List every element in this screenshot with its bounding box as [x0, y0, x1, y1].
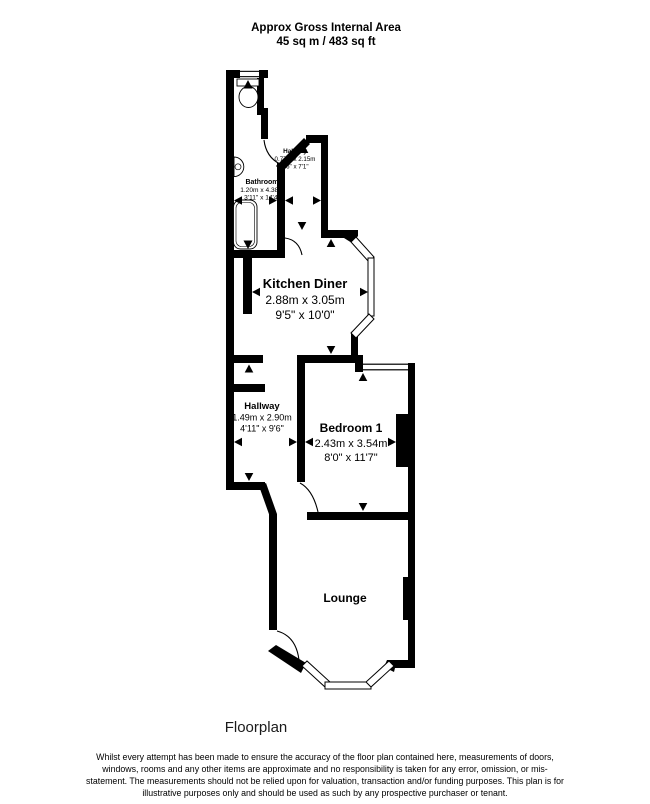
- room-hallway-label: Hallway 1.49m x 2.90m 4'11" x 9'6": [232, 401, 292, 434]
- room-dim-imperial: 4'11" x 9'6": [240, 424, 284, 434]
- wall-kitchen-chimney: [243, 250, 252, 314]
- wall-left-outer: [226, 70, 234, 490]
- room-name: Hallway: [244, 401, 280, 412]
- kitchen-door-arc: [285, 238, 302, 255]
- room-name: Hallway: [283, 148, 307, 155]
- lounge-bay-glazing-mid: [325, 682, 371, 689]
- wall-entry-right: [321, 135, 328, 238]
- room-dim-metric: 2.43m x 3.54m: [315, 438, 388, 450]
- wall-bedroom-top-junction: [355, 355, 363, 372]
- sink-icon: [234, 157, 244, 177]
- room-kitchen-diner-label: Kitchen Diner 2.88m x 3.05m 9'5" x 10'0": [263, 276, 348, 322]
- measure-arrow-left: [305, 438, 313, 446]
- wall-bathroom-bottom: [226, 250, 285, 258]
- floorplan-caption: Floorplan: [225, 719, 288, 736]
- floorplan-page: Approx Gross Internal Area 45 sq m / 483…: [0, 0, 650, 804]
- room-bedroom-1-label: Bedroom 1 2.43m x 3.54m 8'0" x 11'7": [315, 421, 388, 464]
- wall-bathroom-right: [277, 163, 285, 258]
- wall-lounge-left: [269, 514, 277, 630]
- room-entry-hallway-label: Hallway 0.77m x 2.15m 2'6" x 7'1": [275, 148, 316, 171]
- measure-arrow-down: [245, 473, 254, 481]
- room-dim-metric: 1.49m x 2.90m: [232, 413, 292, 423]
- room-dim-metric: 1.20m x 4.38m: [240, 187, 284, 194]
- measure-arrow-left: [234, 438, 242, 446]
- room-name: Bathroom: [245, 179, 278, 186]
- measure-arrow-right: [388, 438, 396, 446]
- wall-wc-right-lower: [261, 112, 268, 139]
- floorplan-drawing: Approx Gross Internal Area 45 sq m / 483…: [0, 0, 650, 745]
- wall-kitchen-bottom-left: [226, 355, 263, 363]
- wc-window-line: [240, 71, 259, 72]
- title-line1: Approx Gross Internal Area: [251, 22, 401, 34]
- room-dim-imperial: 2'6" x 7'1": [281, 164, 308, 171]
- wall-kitchen-bottom-right: [297, 355, 358, 363]
- fixtures: [234, 79, 260, 249]
- measure-arrow-down: [298, 222, 307, 230]
- room-dim-metric: 0.77m x 2.15m: [275, 156, 316, 163]
- wall-narrowing-diagonal: [259, 483, 277, 517]
- disclaimer-text: Whilst every attempt has been made to en…: [84, 751, 566, 800]
- room-dim-imperial: 9'5" x 10'0": [275, 308, 334, 322]
- measure-arrow-up: [359, 373, 368, 381]
- measure-arrow-right: [360, 288, 368, 296]
- wall-hall-niche: [226, 384, 265, 392]
- room-dim-imperial: 8'0" x 11'7": [324, 452, 377, 464]
- room-name: Lounge: [323, 591, 367, 605]
- wall-lounge-chimney: [403, 577, 415, 620]
- room-lounge-label: Lounge: [323, 591, 367, 605]
- title-line2: 45 sq m / 483 sq ft: [276, 36, 375, 48]
- kitchen-bay-glazing-bottom: [351, 314, 374, 338]
- measure-arrow-right: [313, 196, 321, 204]
- room-name: Bedroom 1: [320, 421, 383, 435]
- wall-hall-bedroom-divider: [297, 363, 305, 482]
- wall-bedroom-chimney: [396, 414, 408, 467]
- measure-arrow-left: [252, 288, 260, 296]
- room-dim-imperial: 3'11" x 14'4": [244, 195, 280, 202]
- bedroom-window-line: [363, 369, 408, 370]
- bedroom-window-line: [363, 364, 408, 365]
- measure-arrow-left: [285, 196, 293, 204]
- room-name: Kitchen Diner: [263, 276, 348, 291]
- wall-lounge-entry-diagonal: [268, 645, 306, 673]
- measure-arrow-down: [327, 346, 336, 354]
- measure-arrow-right: [289, 438, 297, 446]
- lounge-bay-glazing-right: [366, 661, 394, 687]
- measure-arrow-down: [359, 503, 368, 511]
- wall-bedroom-bottom: [307, 512, 415, 520]
- room-bathroom-label: Bathroom 1.20m x 4.38m 3'11" x 14'4": [240, 179, 284, 202]
- measure-arrow-up: [327, 239, 336, 247]
- kitchen-bay-glazing-mid: [368, 258, 374, 316]
- room-dim-metric: 2.88m x 3.05m: [265, 293, 344, 307]
- toilet-bowl-icon: [239, 87, 258, 108]
- measure-arrow-up: [245, 365, 254, 373]
- wc-window-line: [240, 76, 259, 77]
- bedroom-door-arc: [300, 483, 318, 512]
